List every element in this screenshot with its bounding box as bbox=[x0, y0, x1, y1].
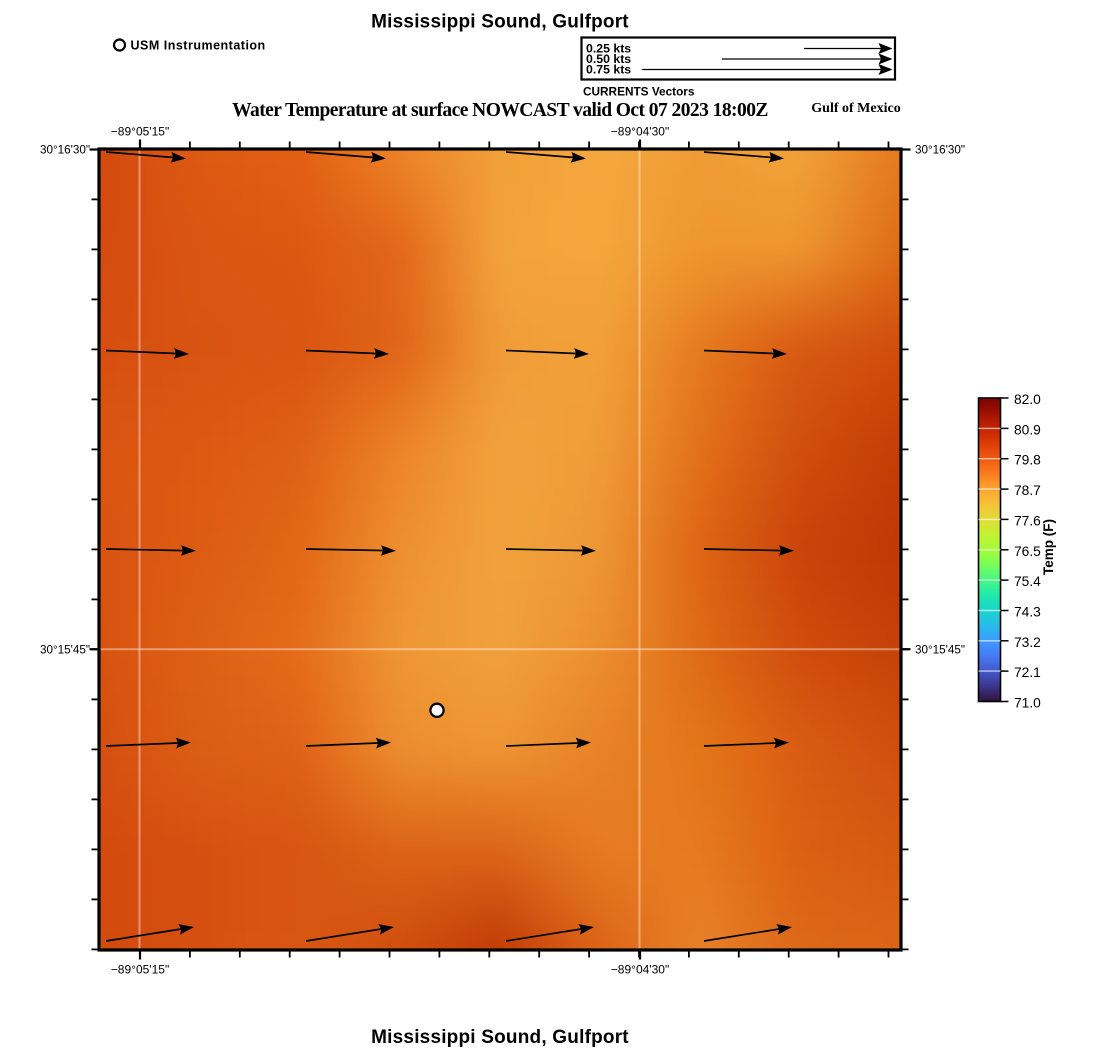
svg-text:74.3: 74.3 bbox=[1014, 605, 1041, 620]
svg-text:−89°04'30": −89°04'30" bbox=[611, 963, 669, 977]
svg-text:71.0: 71.0 bbox=[1014, 696, 1041, 711]
svg-text:75.4: 75.4 bbox=[1014, 574, 1041, 589]
svg-text:78.7: 78.7 bbox=[1014, 483, 1041, 498]
svg-text:79.8: 79.8 bbox=[1014, 453, 1041, 468]
svg-text:30°16'30": 30°16'30" bbox=[915, 144, 965, 157]
svg-text:−89°04'30": −89°04'30" bbox=[611, 125, 669, 139]
svg-text:0.75 kts: 0.75 kts bbox=[586, 63, 631, 77]
svg-text:73.2: 73.2 bbox=[1014, 635, 1041, 650]
svg-text:80.9: 80.9 bbox=[1014, 422, 1041, 437]
svg-text:82.0: 82.0 bbox=[1014, 392, 1041, 407]
svg-text:30°15'45": 30°15'45" bbox=[915, 644, 965, 657]
svg-text:Mississippi Sound, Gulfport: Mississippi Sound, Gulfport bbox=[371, 1027, 629, 1048]
svg-text:−89°05'15": −89°05'15" bbox=[111, 963, 169, 977]
svg-text:76.5: 76.5 bbox=[1014, 544, 1041, 559]
svg-text:72.1: 72.1 bbox=[1014, 665, 1041, 680]
svg-text:−89°05'15": −89°05'15" bbox=[111, 125, 169, 139]
svg-text:30°16'30": 30°16'30" bbox=[40, 144, 90, 157]
svg-text:Temp (F): Temp (F) bbox=[1041, 519, 1056, 575]
svg-text:CURRENTS Vectors: CURRENTS Vectors bbox=[583, 85, 695, 99]
svg-text:30°15'45": 30°15'45" bbox=[40, 644, 90, 657]
svg-text:Mississippi Sound, Gulfport: Mississippi Sound, Gulfport bbox=[371, 12, 629, 33]
svg-text:USM Instrumentation: USM Instrumentation bbox=[131, 39, 266, 53]
svg-text:Water Temperature at surface N: Water Temperature at surface NOWCAST val… bbox=[232, 100, 768, 121]
svg-text:77.6: 77.6 bbox=[1014, 513, 1041, 528]
svg-text:Gulf of Mexico: Gulf of Mexico bbox=[811, 101, 900, 116]
